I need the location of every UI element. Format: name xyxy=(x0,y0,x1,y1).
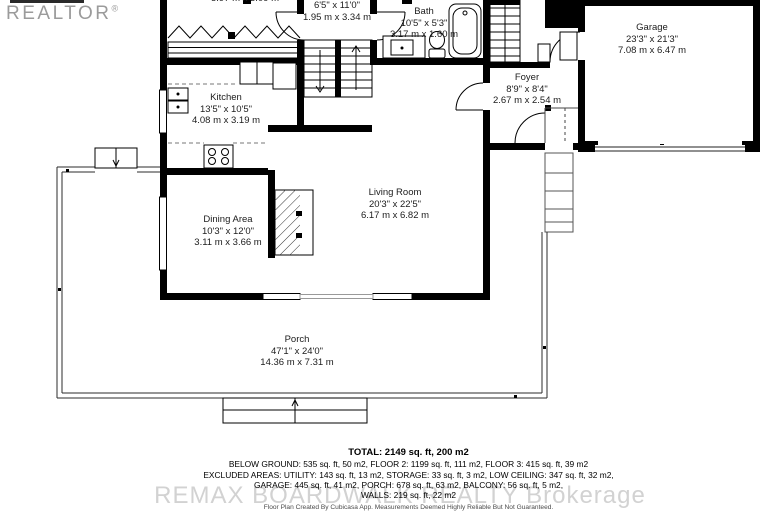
foyer-closet xyxy=(545,108,578,143)
floor-plan-page: REALTOR® 5.97 m x 3.09 m 6'5" x 11'0" 1.… xyxy=(0,0,767,511)
summary-line-excluded: EXCLUDED AREAS: UTILITY: 143 sq. ft, 13 … xyxy=(25,470,767,480)
label-garage: Garage 23'3" x 21'3" 7.08 m x 6.47 m xyxy=(618,22,686,57)
label-dining-area: Dining Area 10'3" x 12'0" 3.11 m x 3.66 … xyxy=(194,214,261,249)
summary-line-floors: BELOW GROUND: 535 sq. ft, 50 m2, FLOOR 2… xyxy=(25,459,767,469)
stairs-exterior xyxy=(545,153,573,232)
summary-total: TOTAL: 2149 sq. ft, 200 m2 xyxy=(25,447,767,458)
disclaimer-text: Floor Plan Created By Cubicasa App. Meas… xyxy=(25,504,767,511)
realtor-watermark: REALTOR® xyxy=(6,3,118,25)
stairs-main xyxy=(490,0,520,62)
porch-side-steps xyxy=(95,148,137,168)
label-porch: Porch 47'1" x 24'0" 14.36 m x 7.31 m xyxy=(260,334,333,369)
label-upper-room: 5.97 m x 3.09 m xyxy=(211,0,279,5)
closet-symbols xyxy=(168,26,300,58)
label-kitchen: Kitchen 13'5" x 10'5" 4.08 m x 3.19 m xyxy=(192,92,260,127)
label-bath: Bath 10'5" x 5'3" 3.17 m x 1.60 m xyxy=(390,6,458,41)
porch-front-steps xyxy=(223,398,367,423)
fireplace xyxy=(275,190,313,255)
label-living-room: Living Room 20'3" x 22'5" 6.17 m x 6.82 … xyxy=(361,187,429,222)
registered-mark: ® xyxy=(112,4,119,14)
label-foyer: Foyer 8'9" x 8'4" 2.67 m x 2.54 m xyxy=(493,72,561,107)
summary-line-walls: WALLS: 219 sq. ft, 22 m2 xyxy=(25,490,767,500)
floor-plan-drawing xyxy=(0,0,767,511)
summary-line-garage-porch: GARAGE: 445 sq. ft, 41 m2, PORCH: 678 sq… xyxy=(25,480,767,490)
label-hall: 6'5" x 11'0" 1.95 m x 3.34 m xyxy=(303,0,371,23)
